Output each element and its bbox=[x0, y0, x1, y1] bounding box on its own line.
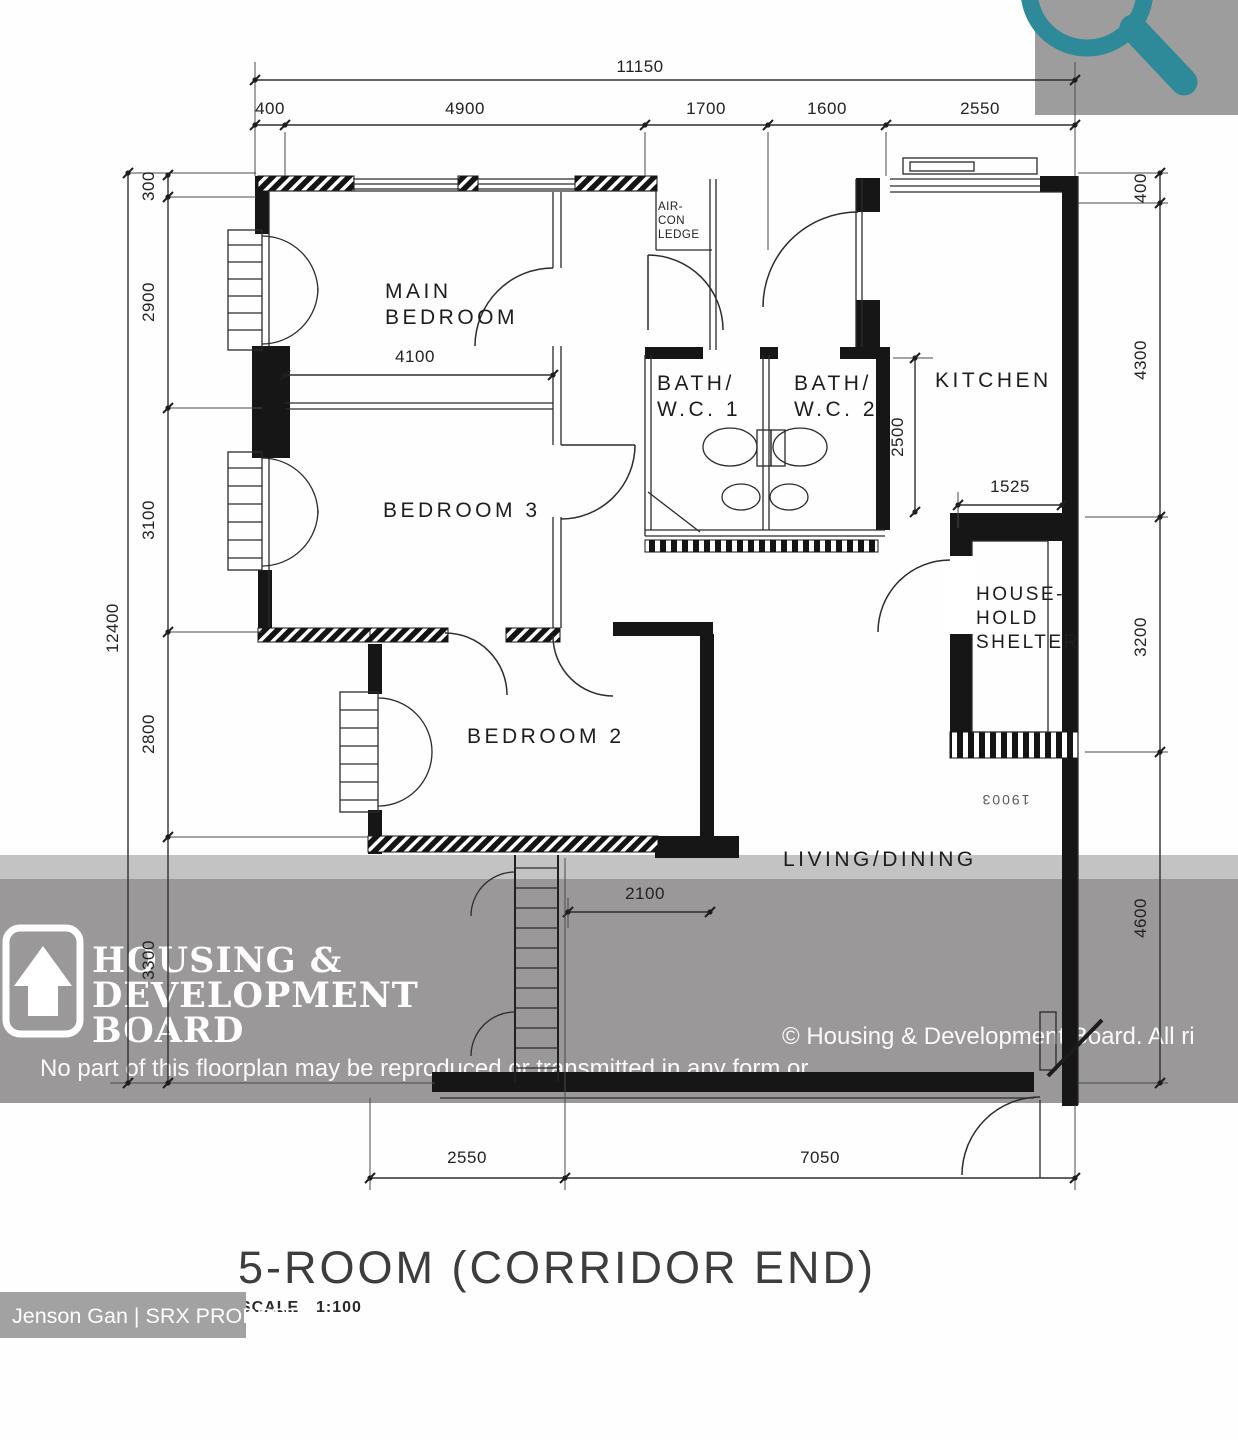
dim-top-total: 11150 bbox=[616, 57, 663, 76]
dim-left-total: 12400 bbox=[103, 603, 122, 653]
floorplan-page: HOUSING & DEVELOPMENT BOARD © Housing & … bbox=[0, 0, 1238, 1440]
room-label-aircon-line3: LEDGE bbox=[658, 229, 700, 241]
room-label-main-bedroom-line1: MAIN bbox=[385, 280, 452, 303]
dim-main-bedroom-width: 4100 bbox=[395, 347, 435, 366]
dim-right-seg1: 400 bbox=[1131, 173, 1150, 203]
dim-bottom-seg2: 7050 bbox=[800, 1148, 840, 1167]
room-label-bath1-line1: BATH/ bbox=[657, 372, 735, 395]
room-label-living-dining: LIVING/DINING bbox=[783, 848, 977, 871]
room-label-bath2-line2: W.C. 2 bbox=[794, 398, 878, 421]
copyright-line1: © Housing & Development Board. All ri bbox=[782, 1023, 1195, 1050]
dim-left-seg5: 3300 bbox=[139, 940, 158, 980]
title-block: 5-ROOM (CORRIDOR END) SCALE 1:100 bbox=[238, 1242, 876, 1316]
stamp-text: 19003 bbox=[981, 792, 1030, 808]
room-label-aircon-line2: CON bbox=[658, 215, 685, 227]
room-label-bedroom2: BEDROOM 2 bbox=[467, 725, 625, 748]
room-label-shelter-line3: SHELTER bbox=[976, 632, 1080, 653]
dim-right-seg3: 3200 bbox=[1131, 617, 1150, 657]
scale-value: 1:100 bbox=[316, 1299, 362, 1316]
dim-top-seg5: 2550 bbox=[960, 99, 1000, 118]
room-label-main-bedroom-line2: BEDROOM bbox=[385, 306, 518, 329]
dim-left-seg2: 2900 bbox=[139, 282, 158, 322]
dim-left-seg1: 300 bbox=[139, 171, 158, 201]
room-label-aircon-line1: AIR- bbox=[658, 201, 683, 213]
room-label-bedroom3: BEDROOM 3 bbox=[383, 499, 541, 522]
fixtures-layer bbox=[648, 428, 827, 532]
dim-kitchen-width: 1525 bbox=[990, 477, 1030, 496]
room-label-bath2-line1: BATH/ bbox=[794, 372, 872, 395]
dim-top-seg3: 1700 bbox=[686, 99, 726, 118]
room-label-kitchen: KITCHEN bbox=[935, 369, 1052, 392]
room-label-shelter-line2: HOLD bbox=[976, 608, 1039, 629]
dim-living-width: 2100 bbox=[625, 884, 665, 903]
dim-left-seg3: 3100 bbox=[139, 500, 158, 540]
dim-top-seg2: 4900 bbox=[445, 99, 485, 118]
room-label-bath1-line2: W.C. 1 bbox=[657, 398, 741, 421]
room-label-shelter-line1: HOUSE- bbox=[976, 584, 1065, 605]
floorplan-image: HOUSING & DEVELOPMENT BOARD © Housing & … bbox=[0, 0, 1238, 1440]
dim-kitchen-depth: 2500 bbox=[888, 417, 907, 457]
dim-top-seg4: 1600 bbox=[807, 99, 847, 118]
attribution-text: Jenson Gan | SRX PROPERTY bbox=[12, 1304, 314, 1328]
dim-top-seg1: 400 bbox=[255, 99, 285, 118]
plan-title: 5-ROOM (CORRIDOR END) bbox=[238, 1242, 876, 1293]
dim-right-seg2: 4300 bbox=[1131, 340, 1150, 380]
dim-bottom-seg1: 2550 bbox=[447, 1148, 487, 1167]
dim-left-seg4: 2800 bbox=[139, 714, 158, 754]
dim-right-seg4: 4600 bbox=[1131, 898, 1150, 938]
